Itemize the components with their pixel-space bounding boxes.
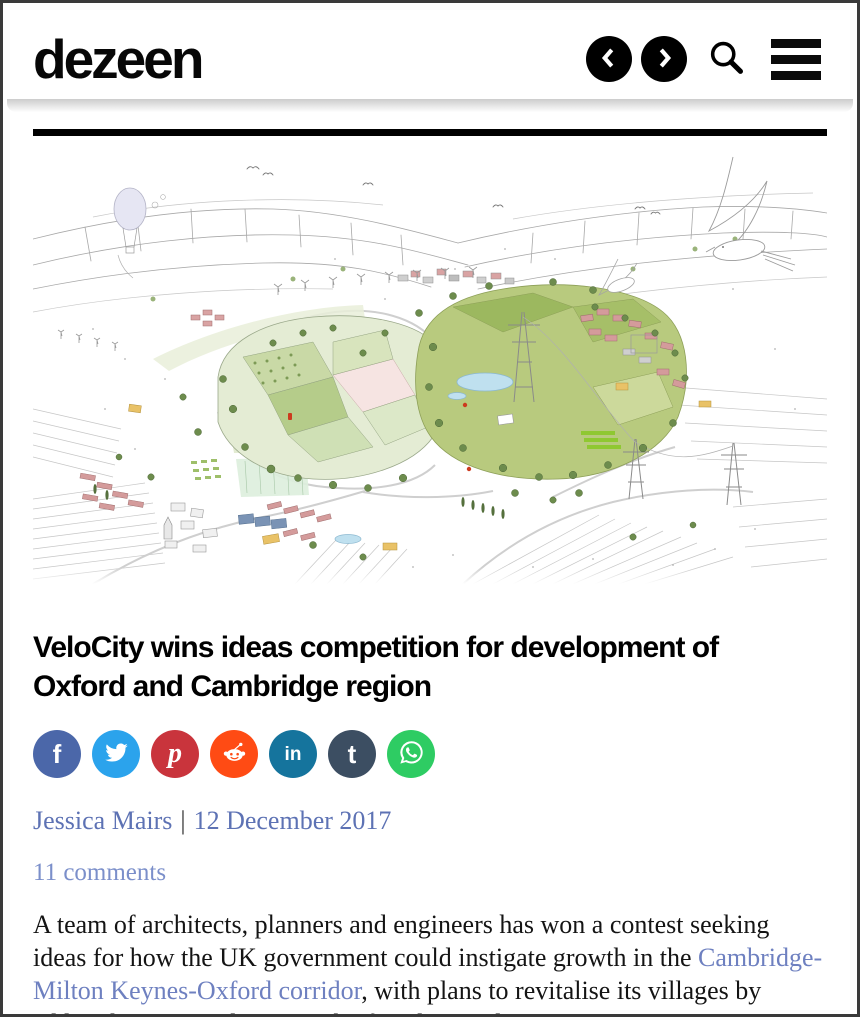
facebook-icon: f bbox=[53, 741, 62, 767]
divider-rule bbox=[33, 129, 827, 136]
hamburger-menu-icon bbox=[771, 39, 821, 48]
pinterest-icon: p bbox=[168, 740, 182, 768]
pond-south bbox=[335, 535, 361, 544]
share-linkedin-button[interactable]: in bbox=[269, 730, 317, 778]
share-whatsapp-button[interactable] bbox=[387, 730, 435, 778]
share-reddit-button[interactable] bbox=[210, 730, 258, 778]
article-date: 12 December 2017 bbox=[194, 806, 392, 835]
share-twitter-button[interactable] bbox=[92, 730, 140, 778]
linkedin-icon: in bbox=[285, 745, 302, 764]
dezeen-logo[interactable]: dezeen bbox=[33, 33, 201, 85]
whatsapp-icon bbox=[398, 739, 425, 769]
share-tumblr-button[interactable]: t bbox=[328, 730, 376, 778]
previous-article-button[interactable] bbox=[586, 36, 632, 82]
byline-separator: | bbox=[172, 806, 193, 835]
article-page: dezeen bbox=[0, 0, 860, 1017]
header-nav-icons bbox=[586, 36, 821, 82]
hero-illustration bbox=[33, 147, 827, 584]
menu-button[interactable] bbox=[771, 39, 821, 80]
left-green-patchwork bbox=[218, 316, 447, 480]
helipad bbox=[498, 414, 514, 425]
twitter-bird-icon bbox=[103, 739, 130, 769]
article-body-paragraph: A team of architects, planners and engin… bbox=[33, 908, 827, 1017]
body-text-before-link: A team of architects, planners and engin… bbox=[33, 910, 769, 972]
search-icon bbox=[706, 38, 746, 81]
tumblr-icon: t bbox=[348, 741, 357, 767]
reddit-alien-icon bbox=[221, 739, 248, 769]
share-facebook-button[interactable]: f bbox=[33, 730, 81, 778]
chevron-left-icon bbox=[596, 45, 622, 74]
article-headline: VeloCity wins ideas competition for deve… bbox=[33, 628, 815, 706]
social-share-row: f p bbox=[33, 730, 827, 778]
byline: Jessica Mairs|12 December 2017 bbox=[33, 806, 827, 836]
next-article-button[interactable] bbox=[641, 36, 687, 82]
header-shadow bbox=[7, 99, 853, 112]
chevron-right-icon bbox=[651, 45, 677, 74]
site-header: dezeen bbox=[3, 3, 857, 99]
author-link[interactable]: Jessica Mairs bbox=[33, 806, 172, 835]
share-pinterest-button[interactable]: p bbox=[151, 730, 199, 778]
article-main: VeloCity wins ideas competition for deve… bbox=[3, 628, 857, 1017]
search-button[interactable] bbox=[706, 38, 746, 81]
comments-link[interactable]: 11 comments bbox=[33, 859, 166, 887]
